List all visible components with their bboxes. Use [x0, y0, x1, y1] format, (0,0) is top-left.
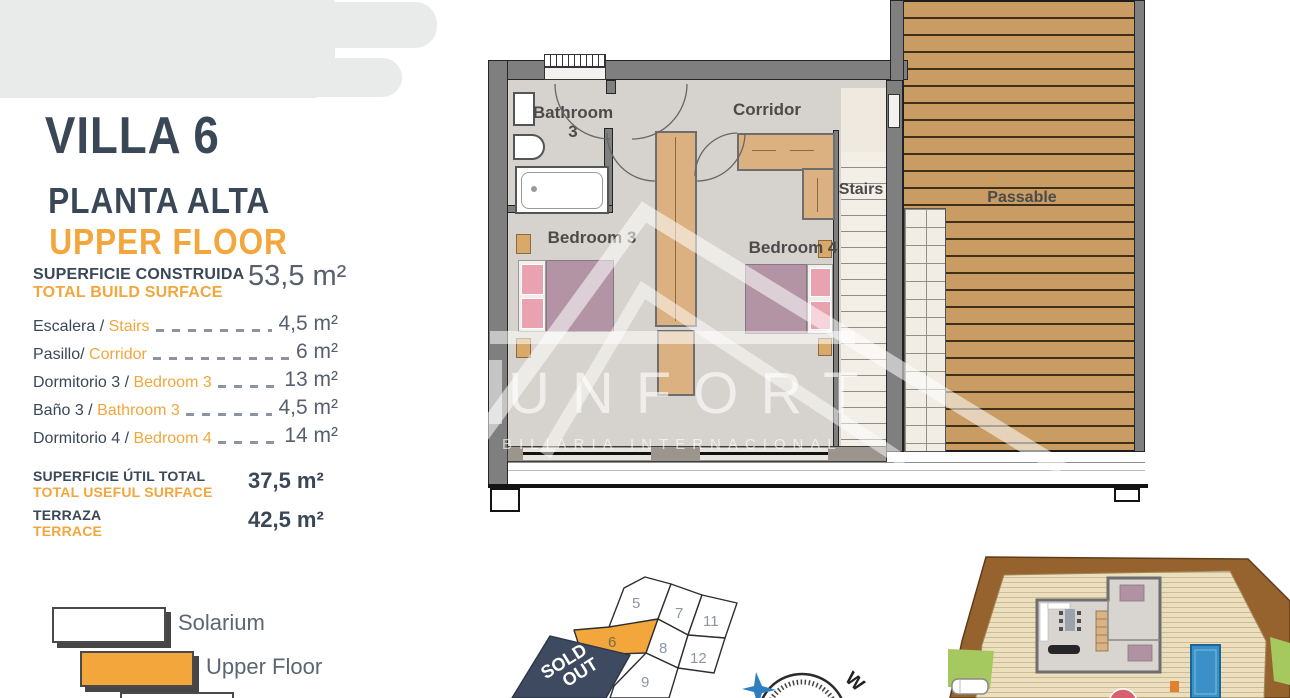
legend-swatch-partial [120, 692, 234, 698]
plot-number: 5 [632, 595, 640, 612]
wall-deck-stub [890, 0, 904, 86]
plot-number-highlighted: 6 [608, 634, 616, 651]
page-title: VILLA 6 [45, 106, 220, 166]
mini-site-map [948, 545, 1290, 698]
room-label-es: Pasillo/ [33, 346, 85, 364]
dash-leader [218, 441, 279, 444]
compass-letter: W [841, 668, 868, 696]
terrace-value: 42,5 m² [248, 507, 324, 533]
window-right-wall [888, 94, 900, 128]
kitchen-island [1048, 645, 1080, 654]
legend-swatch-upper-floor [80, 651, 194, 687]
room-label-en: Bedroom 4 [133, 430, 211, 448]
bed3-pillow [521, 264, 544, 295]
terrace-post-left [490, 488, 520, 512]
room-label-es: Dormitorio 3 / [33, 374, 129, 392]
kitchen-counter [1040, 603, 1048, 641]
room-value: 14 m² [284, 424, 338, 448]
stairs-label: Stairs [830, 180, 892, 199]
terrace-label-es: TERRAZA [33, 507, 101, 524]
plot-number: 8 [659, 640, 667, 657]
compass: W [742, 660, 872, 698]
deck-right-wall [1134, 0, 1145, 452]
dash-leader [186, 413, 273, 416]
decor-blob [330, 66, 402, 92]
room-label-en: Bathroom 3 [97, 402, 180, 420]
room-label-es: Dormitorio 4 / [33, 430, 129, 448]
room-label-en: Bedroom 3 [133, 374, 211, 392]
room-value: 13 m² [284, 368, 338, 392]
wardrobe-mark [817, 178, 818, 212]
room-row-bedroom3: Dormitorio 3 / Bedroom 3 13 m² [33, 370, 338, 392]
house-bed-bottom [1128, 645, 1152, 661]
corridor-label: Corridor [712, 100, 822, 119]
bathroom-label: Bathroom 3 [528, 103, 618, 141]
useful-surface-label-es: SUPERFICIE ÚTIL TOTAL [33, 468, 205, 485]
terrace-post-right [1114, 488, 1140, 502]
wall-left [488, 60, 508, 486]
wall-right [886, 80, 903, 452]
wardrobe-mark [752, 150, 776, 151]
bed4-nightstand [818, 338, 832, 356]
subtitle-en: UPPER FLOOR [49, 221, 287, 263]
bed3-nightstand [516, 234, 531, 254]
wardrobe-center [655, 131, 697, 327]
legend-label-upper-floor: Upper Floor [206, 654, 322, 680]
room-row-bedroom4: Dormitorio 4 / Bedroom 4 14 m² [33, 426, 338, 448]
bedroom3-window-line [523, 452, 651, 455]
decor-blob [300, 2, 437, 48]
room-row-bathroom3: Baño 3 / Bathroom 3 4,5 m² [33, 398, 338, 420]
bathroom-window-hatch [544, 54, 606, 67]
wardrobe-corridor-top [737, 133, 835, 171]
wardrobe-mark [790, 150, 814, 151]
bedroom4-window-line [700, 452, 828, 455]
dining-table [1065, 609, 1075, 631]
build-surface-label-es: SUPERFICIE CONSTRUIDA [33, 266, 244, 283]
dash-leader [153, 357, 290, 360]
plot-number: 9 [641, 674, 649, 691]
room-row-corridor: Pasillo/ Corridor 6 m² [33, 342, 338, 364]
dash-leader [156, 329, 273, 332]
build-surface-label-en: TOTAL BUILD SURFACE [33, 284, 223, 301]
useful-surface-value: 37,5 m² [248, 468, 324, 494]
bedroom4-label: Bedroom 4 [728, 238, 858, 257]
kitchen-counter-top [1048, 603, 1070, 609]
room-label-en: Stairs [109, 318, 150, 336]
bed3-nightstand [516, 338, 531, 358]
plot-number: 11 [703, 613, 719, 630]
house-stairs [1096, 611, 1108, 651]
garden-chair [1170, 681, 1179, 692]
room-row-stairs: Escalera / Stairs 4,5 m² [33, 314, 338, 336]
house-bed-top [1120, 585, 1144, 601]
wardrobe-center-lower [657, 330, 695, 396]
plot-number: 7 [675, 605, 683, 622]
wardrobe-line [675, 137, 676, 321]
compass-ring [758, 674, 846, 698]
wall-door-stub [606, 80, 616, 94]
bedroom3-label: Bedroom 3 [532, 228, 652, 247]
subtitle-es: PLANTA ALTA [48, 180, 270, 222]
room-label-en: Corridor [89, 346, 147, 364]
legend-label-solarium: Solarium [178, 610, 265, 636]
bathroom-window [544, 67, 606, 80]
deck-tiled-strip [904, 208, 946, 452]
useful-surface-label-en: TOTAL USEFUL SURFACE [33, 484, 213, 501]
bed3-blanket [546, 260, 614, 332]
dash-leader [218, 385, 279, 388]
terrace-label-en: TERRACE [33, 523, 102, 540]
room-value: 4,5 m² [278, 396, 338, 420]
bed4-pillow [810, 301, 831, 330]
room-label-es: Escalera / [33, 318, 104, 336]
plot-number: 12 [690, 650, 707, 667]
bed4-blanket [745, 264, 807, 334]
legend-swatch-solarium [52, 607, 166, 643]
deck-label: Passable [962, 188, 1082, 207]
room-label-es: Baño 3 / [33, 402, 93, 420]
plan-bottom-edge [488, 484, 1148, 488]
car [952, 679, 988, 694]
bed3-pillow [521, 298, 544, 329]
room-value: 6 m² [296, 340, 338, 364]
room-value: 4,5 m² [278, 312, 338, 336]
terrace-line [508, 470, 1145, 471]
stairs-landing [841, 88, 886, 152]
bathtub-drain [531, 186, 537, 192]
build-surface-value: 53,5 m² [248, 260, 346, 293]
villa-floorplan-sheet: VILLA 6 PLANTA ALTA UPPER FLOOR SUPERFIC… [0, 0, 1290, 698]
bed4-pillow [810, 268, 831, 297]
